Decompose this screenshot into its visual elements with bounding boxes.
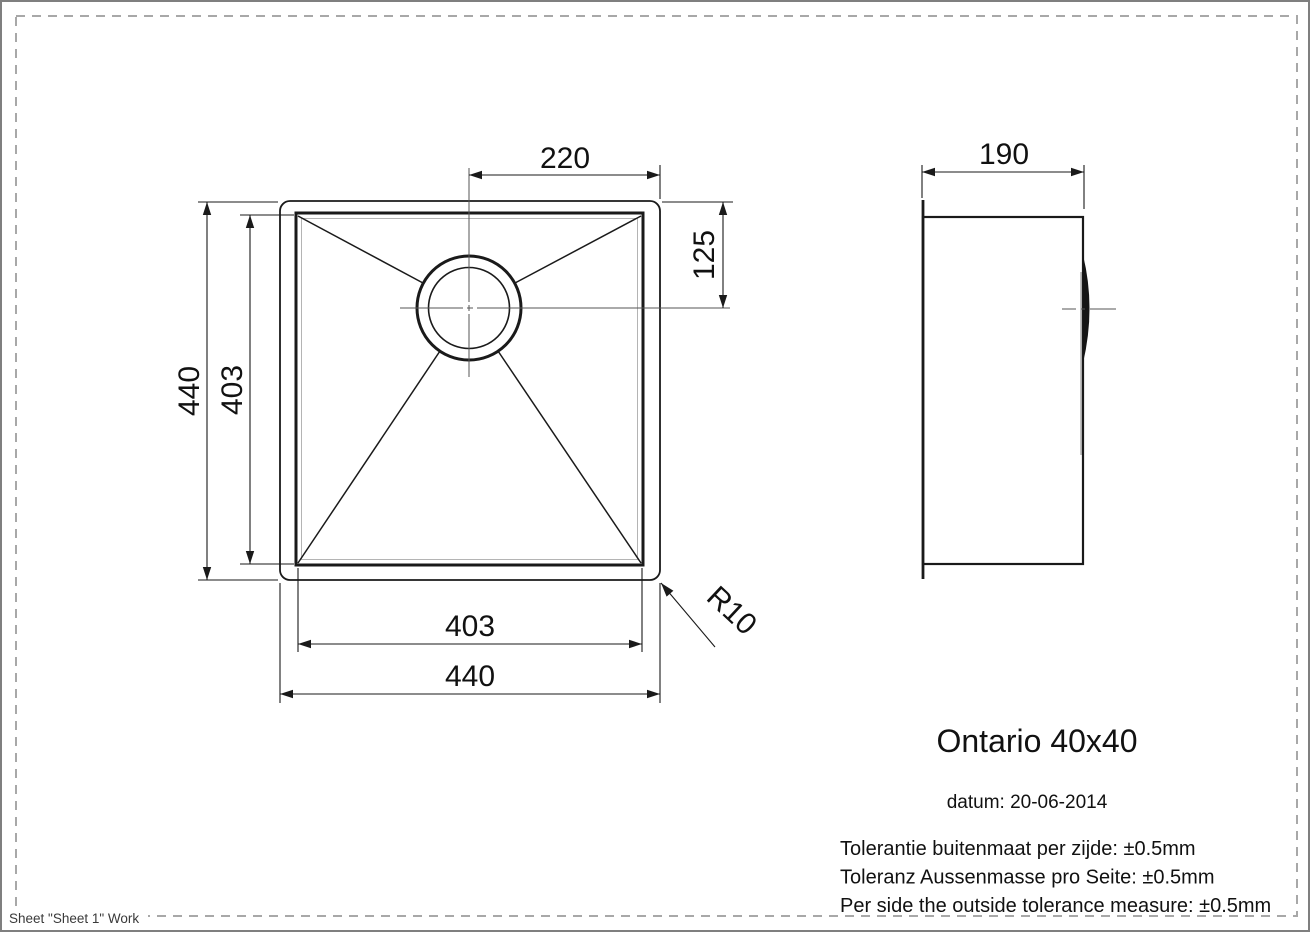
title-block: Ontario 40x40 datum: 20-06-2014 Tolerant… xyxy=(840,723,1271,917)
dim-190: 190 xyxy=(922,138,1084,209)
arrowhead-left xyxy=(469,171,482,179)
tolerance-line-de: Toleranz Aussenmasse pro Seite: ±0.5mm xyxy=(840,867,1214,889)
sink-rim-outline xyxy=(280,201,660,580)
arrowhead-left xyxy=(298,640,311,648)
arrowhead-top xyxy=(246,215,254,228)
dim-403-left: 403 xyxy=(216,215,294,564)
sheet-label: Sheet "Sheet 1" Work xyxy=(9,911,139,926)
arrowhead-left xyxy=(922,168,935,176)
bowl-diagonal-top-right xyxy=(515,216,641,283)
dim-label-r10: R10 xyxy=(700,580,763,642)
arrowhead-right xyxy=(629,640,642,648)
arrowhead-right xyxy=(1071,168,1084,176)
dim-label-190: 190 xyxy=(979,138,1029,171)
tolerance-line-nl: Tolerantie buitenmaat per zijde: ±0.5mm xyxy=(840,838,1196,860)
sheet-dashed-frame xyxy=(16,16,1297,916)
radius-callout-r10: R10 xyxy=(661,580,763,647)
model-title: Ontario 40x40 xyxy=(936,723,1137,759)
arrowhead-left xyxy=(280,690,293,698)
side-body-outline xyxy=(923,217,1083,564)
drawing-sheet: 220 125 440 403 403 xyxy=(0,0,1310,932)
dim-label-403-left: 403 xyxy=(216,365,249,415)
dim-220: 220 xyxy=(469,142,660,199)
arrowhead-right xyxy=(647,690,660,698)
dim-label-220: 220 xyxy=(540,142,590,175)
dim-125: 125 xyxy=(662,202,733,308)
drawing-canvas: 220 125 440 403 403 xyxy=(2,2,1310,932)
top-view xyxy=(280,168,730,580)
bowl-diagonal-bottom-left xyxy=(298,351,440,563)
tolerance-line-en: Per side the outside tolerance measure: … xyxy=(840,895,1271,917)
dim-label-440-left: 440 xyxy=(173,366,206,416)
arrowhead-top xyxy=(203,202,211,215)
dim-label-125: 125 xyxy=(688,230,721,280)
dim-label-440-bottom: 440 xyxy=(445,660,495,693)
dim-440-bottom: 440 xyxy=(280,583,660,703)
sheet-label-group: Sheet "Sheet 1" Work xyxy=(2,907,148,929)
side-view xyxy=(923,200,1116,579)
arrowhead-bottom xyxy=(203,567,211,580)
date-label: datum: 20-06-2014 xyxy=(947,792,1108,813)
bowl-diagonal-bottom-right xyxy=(498,351,641,563)
arrowhead-right xyxy=(647,171,660,179)
arrowhead-top xyxy=(719,202,727,215)
arrowhead-bottom xyxy=(246,551,254,564)
arrowhead xyxy=(661,583,673,597)
arrowhead-bottom xyxy=(719,295,727,308)
dim-label-403-bottom: 403 xyxy=(445,610,495,643)
bowl-diagonal-top-left xyxy=(298,216,423,283)
